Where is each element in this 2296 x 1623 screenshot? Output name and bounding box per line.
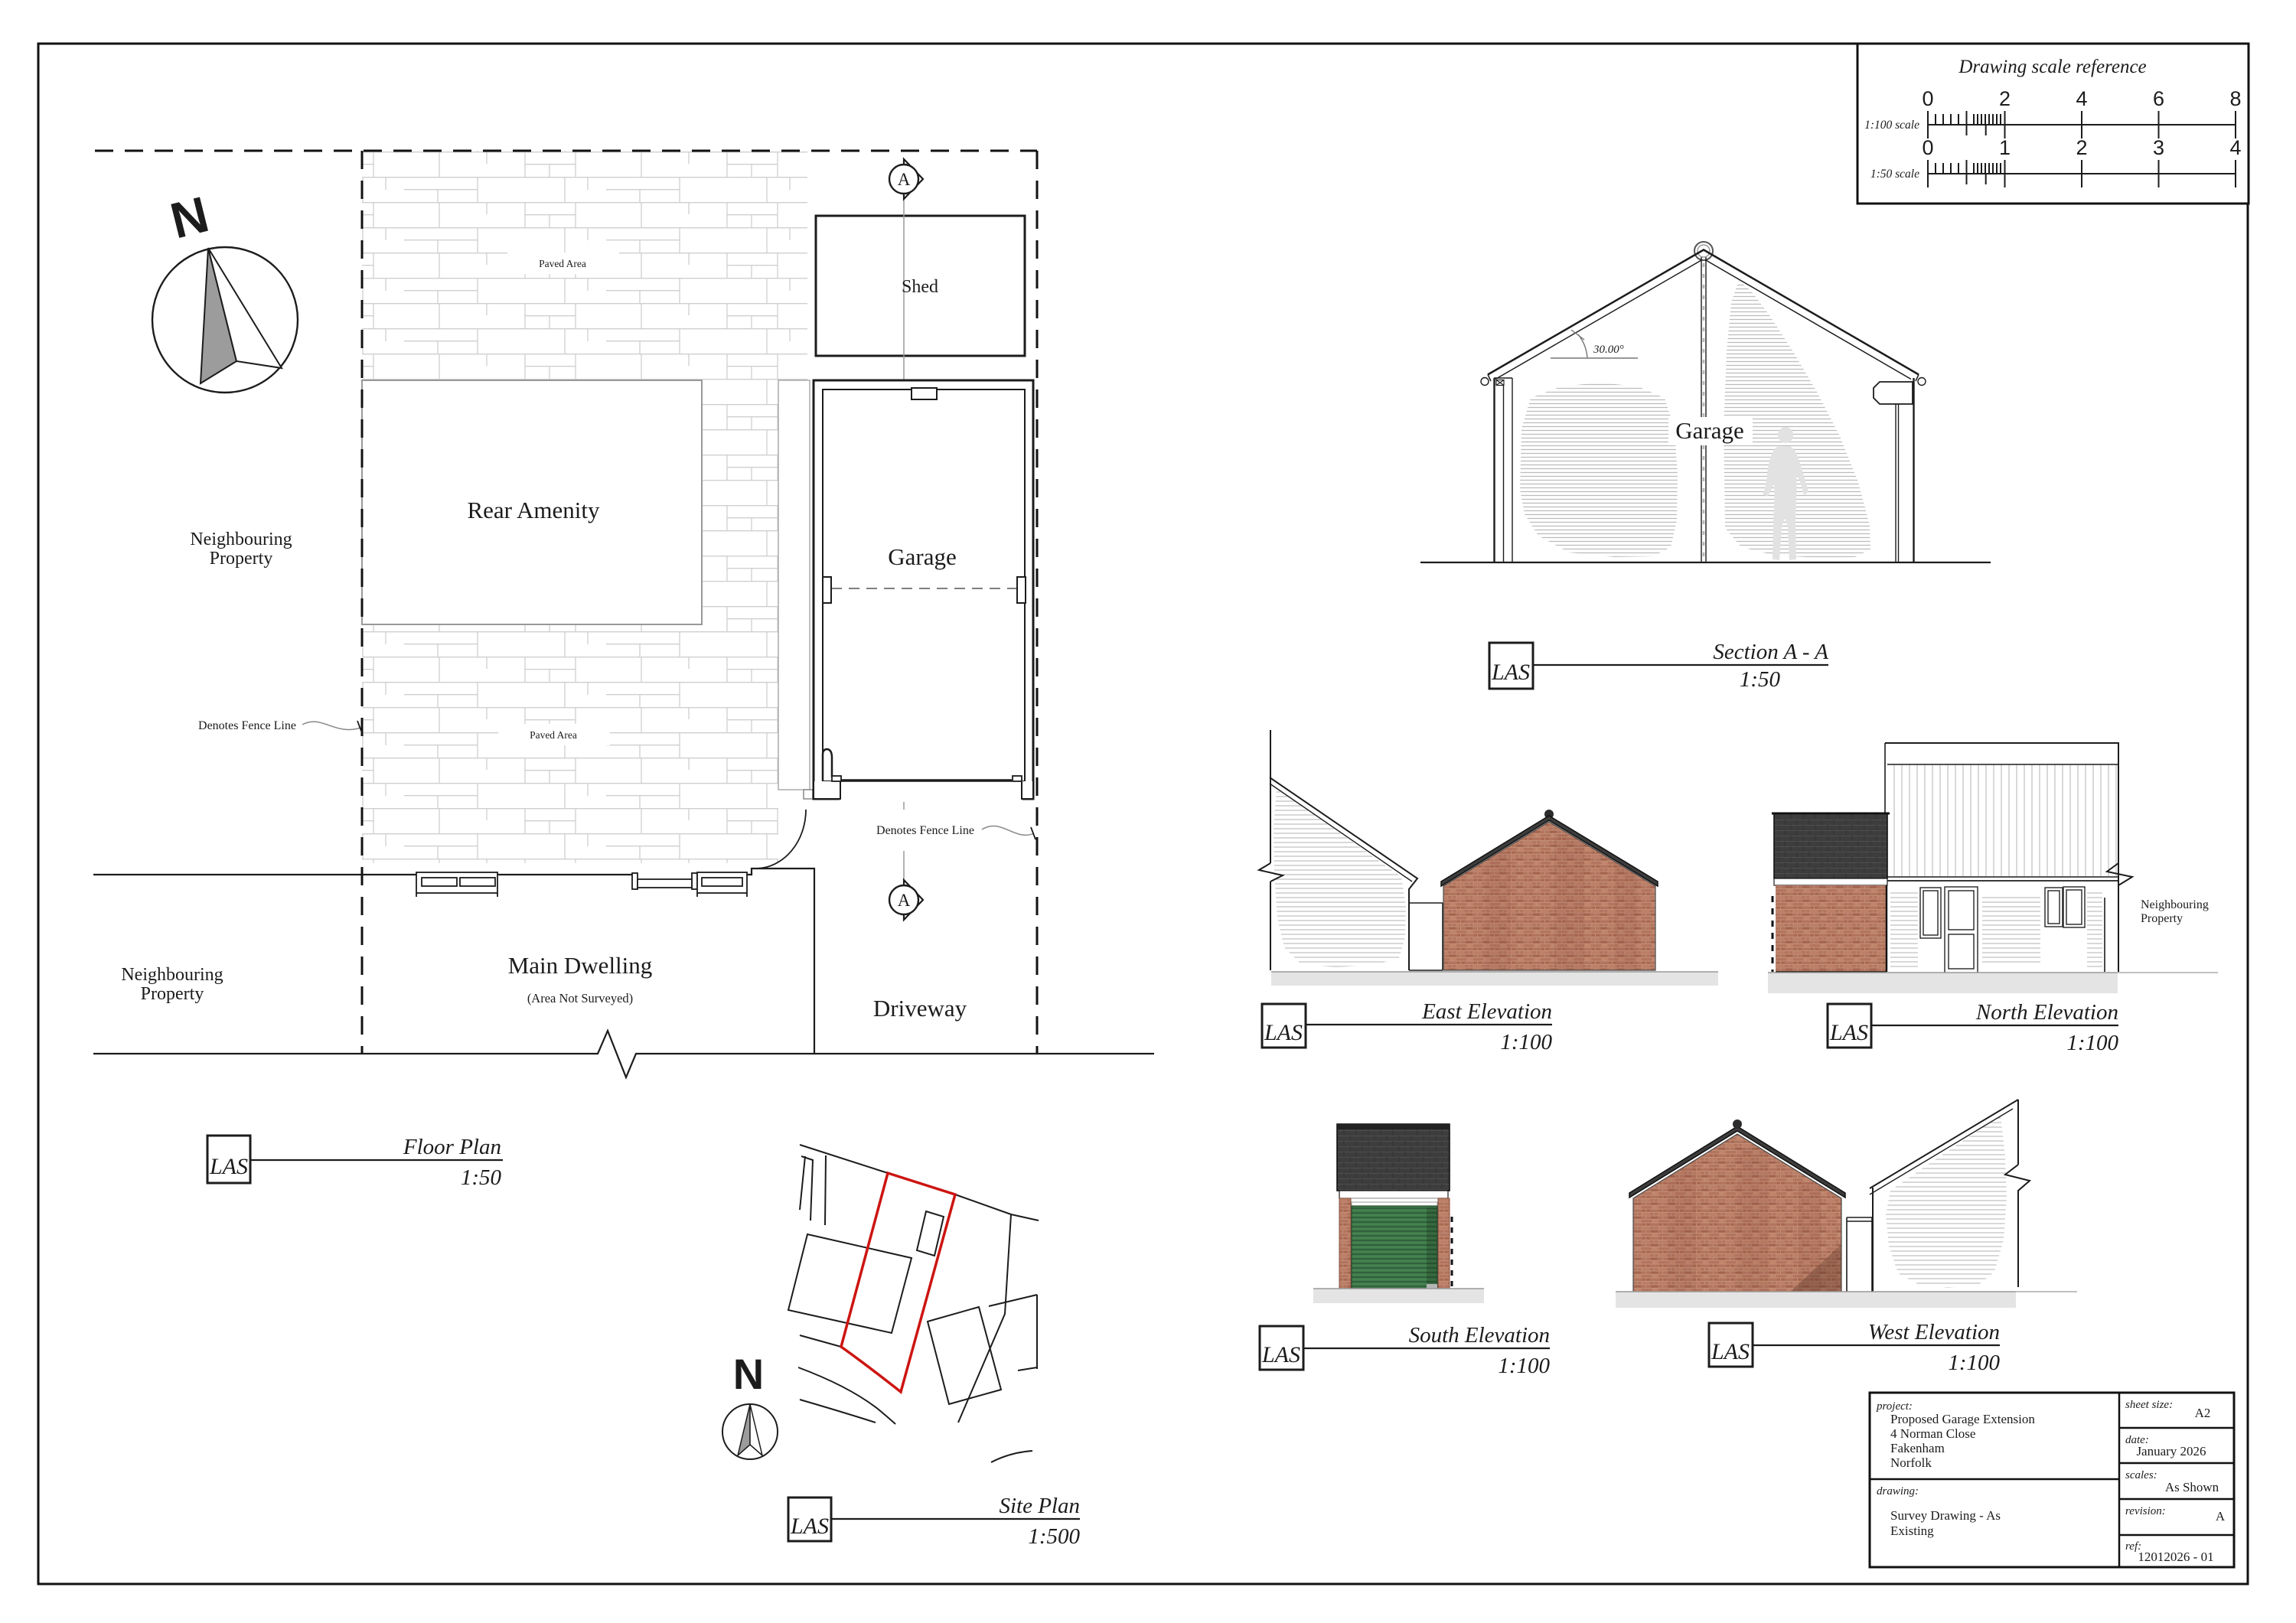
svg-text:1:100: 1:100	[1500, 1030, 1552, 1054]
svg-text:project:: project:	[1876, 1400, 1913, 1413]
svg-text:Shed: Shed	[902, 277, 938, 297]
svg-text:LAS: LAS	[209, 1154, 248, 1179]
svg-text:0: 0	[1922, 87, 1933, 110]
svg-text:LAS: LAS	[1829, 1020, 1868, 1045]
svg-text:1:100: 1:100	[1498, 1354, 1550, 1378]
svg-text:1:100: 1:100	[1948, 1351, 2000, 1375]
svg-text:1:500: 1:500	[1028, 1524, 1080, 1549]
svg-text:South Elevation: South Elevation	[1409, 1323, 1550, 1348]
svg-text:Fakenham: Fakenham	[1890, 1441, 1945, 1455]
svg-text:0: 0	[1922, 136, 1933, 159]
svg-text:Section A - A: Section A - A	[1713, 640, 1828, 664]
svg-text:Property: Property	[141, 984, 204, 1004]
svg-text:Floor Plan: Floor Plan	[403, 1135, 501, 1159]
svg-text:revision:: revision:	[2125, 1505, 2166, 1517]
svg-text:As Shown: As Shown	[2165, 1480, 2219, 1494]
svg-text:1:100: 1:100	[2066, 1031, 2118, 1055]
svg-text:4: 4	[2229, 136, 2241, 159]
svg-text:A: A	[898, 170, 911, 189]
svg-text:4: 4	[2076, 87, 2087, 110]
svg-text:January 2026: January 2026	[2136, 1444, 2206, 1458]
svg-text:2: 2	[1999, 87, 2011, 110]
svg-text:Neighbouring: Neighbouring	[190, 530, 292, 549]
svg-text:Property: Property	[210, 549, 273, 569]
svg-text:Rear Amenity: Rear Amenity	[467, 497, 600, 523]
svg-text:Garage: Garage	[1675, 417, 1744, 444]
svg-text:Proposed Garage Extension: Proposed Garage Extension	[1890, 1412, 2035, 1426]
svg-text:12012026 - 01: 12012026 - 01	[2138, 1550, 2213, 1564]
svg-text:30.00°: 30.00°	[1593, 344, 1624, 356]
svg-text:Main Dwelling: Main Dwelling	[508, 952, 653, 979]
svg-text:(Area Not Surveyed): (Area Not Surveyed)	[527, 991, 633, 1005]
svg-text:North Elevation: North Elevation	[1975, 1000, 2118, 1025]
svg-text:Survey Drawing - As: Survey Drawing - As	[1890, 1508, 2001, 1523]
svg-text:1:50: 1:50	[461, 1165, 502, 1190]
svg-text:Site Plan: Site Plan	[999, 1494, 1080, 1518]
svg-text:1: 1	[1999, 136, 2011, 159]
svg-text:Garage: Garage	[888, 543, 957, 570]
svg-text:LAS: LAS	[1491, 660, 1530, 685]
svg-text:Property: Property	[2141, 912, 2183, 925]
svg-text:Driveway: Driveway	[873, 995, 967, 1022]
svg-text:A: A	[2216, 1509, 2226, 1524]
svg-text:Paved Area: Paved Area	[539, 258, 586, 269]
svg-text:A: A	[898, 891, 911, 910]
svg-text:Denotes Fence Line: Denotes Fence Line	[876, 824, 974, 837]
svg-text:LAS: LAS	[1711, 1339, 1750, 1364]
svg-text:1:50: 1:50	[1740, 667, 1781, 692]
svg-text:4 Norman Close: 4 Norman Close	[1890, 1426, 1975, 1441]
svg-text:Denotes Fence Line: Denotes Fence Line	[198, 719, 296, 732]
svg-text:Existing: Existing	[1890, 1524, 1934, 1538]
svg-text:Paved Area: Paved Area	[530, 729, 577, 741]
svg-text:1:50 scale: 1:50 scale	[1870, 168, 1919, 181]
svg-text:6: 6	[2153, 87, 2164, 110]
svg-text:drawing:: drawing:	[1877, 1485, 1919, 1498]
svg-text:Norfolk: Norfolk	[1890, 1455, 1932, 1470]
svg-text:LAS: LAS	[790, 1514, 829, 1539]
svg-text:1:100 scale: 1:100 scale	[1864, 119, 1919, 132]
svg-text:Drawing scale reference: Drawing scale reference	[1958, 57, 2146, 77]
svg-text:scales:: scales:	[2125, 1469, 2157, 1481]
svg-text:LAS: LAS	[1264, 1020, 1303, 1045]
svg-text:sheet size:: sheet size:	[2125, 1399, 2173, 1411]
svg-text:3: 3	[2153, 136, 2164, 159]
svg-text:LAS: LAS	[1261, 1342, 1300, 1367]
svg-text:8: 8	[2229, 87, 2241, 110]
svg-text:Neighbouring: Neighbouring	[121, 965, 223, 985]
svg-text:2: 2	[2076, 136, 2087, 159]
svg-text:West Elevation: West Elevation	[1868, 1320, 2000, 1344]
svg-text:N: N	[733, 1350, 764, 1398]
svg-text:Neighbouring: Neighbouring	[2141, 898, 2209, 911]
svg-text:A2: A2	[2195, 1406, 2211, 1420]
svg-text:East Elevation: East Elevation	[1421, 999, 1552, 1024]
